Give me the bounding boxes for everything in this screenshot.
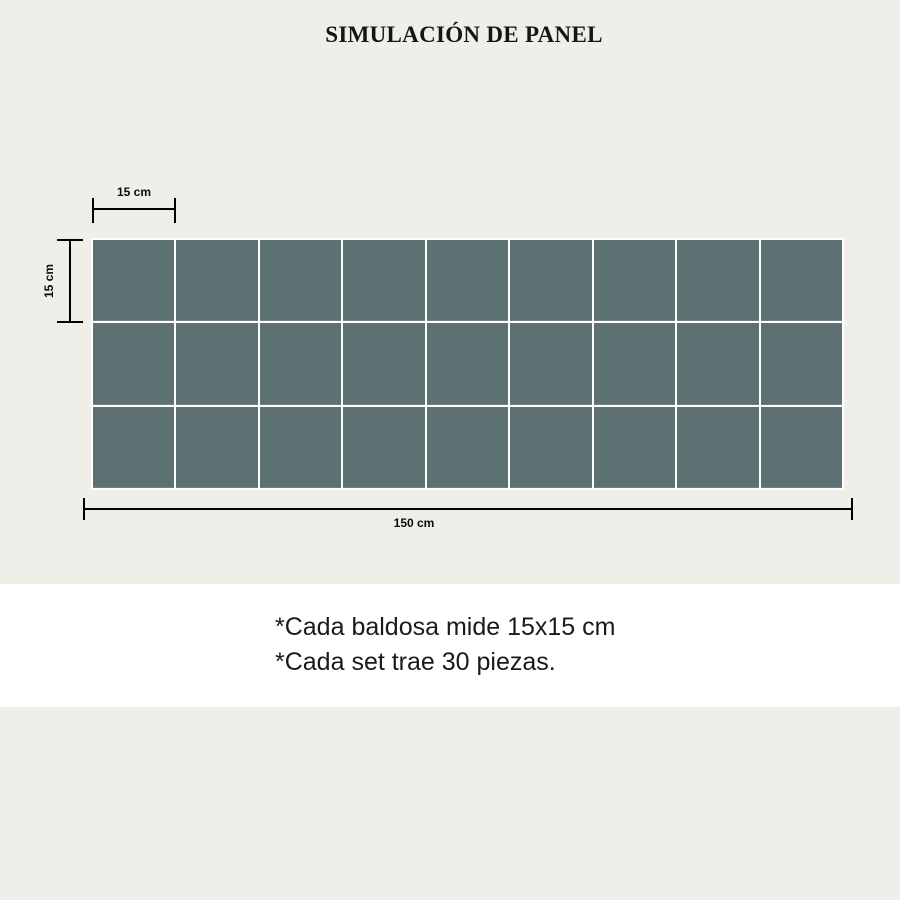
note-tile-size: *Cada baldosa mide 15x15 cm xyxy=(275,610,615,645)
tile-height-dimension-line xyxy=(57,239,83,323)
tile-width-dimension-line xyxy=(92,198,176,223)
tile xyxy=(260,240,341,321)
tile xyxy=(260,323,341,404)
dimension-line xyxy=(69,239,71,323)
tile xyxy=(510,240,591,321)
dimension-tick xyxy=(92,198,94,223)
tile xyxy=(761,407,842,488)
tile xyxy=(510,407,591,488)
tile xyxy=(677,407,758,488)
tile xyxy=(510,323,591,404)
tile xyxy=(176,240,257,321)
tile xyxy=(176,323,257,404)
tile xyxy=(594,323,675,404)
tile xyxy=(93,407,174,488)
tile xyxy=(761,240,842,321)
tile xyxy=(343,240,424,321)
tile-height-dimension-label: 15 cm xyxy=(42,239,56,323)
tile-width-dimension-label: 15 cm xyxy=(92,185,176,199)
note-set-pieces: *Cada set trae 30 piezas. xyxy=(275,645,615,680)
tile xyxy=(93,240,174,321)
tile xyxy=(176,407,257,488)
tile-grid xyxy=(91,238,844,490)
dimension-line xyxy=(92,208,176,210)
tile xyxy=(594,240,675,321)
tile xyxy=(260,407,341,488)
tile xyxy=(427,407,508,488)
tile xyxy=(677,323,758,404)
tile xyxy=(677,240,758,321)
tile xyxy=(427,240,508,321)
tile xyxy=(427,323,508,404)
notes-block: *Cada baldosa mide 15x15 cm *Cada set tr… xyxy=(275,610,615,680)
dimension-tick xyxy=(174,198,176,223)
dimension-tick xyxy=(57,321,83,323)
tile xyxy=(343,407,424,488)
tile xyxy=(761,323,842,404)
tile xyxy=(594,407,675,488)
tile xyxy=(93,323,174,404)
dimension-line xyxy=(83,508,853,510)
panel-width-dimension-line xyxy=(83,498,853,520)
panel-width-dimension-label: 150 cm xyxy=(394,516,435,530)
page-title: SIMULACIÓN DE PANEL xyxy=(0,22,900,48)
tile xyxy=(343,323,424,404)
dimension-tick xyxy=(851,498,853,520)
